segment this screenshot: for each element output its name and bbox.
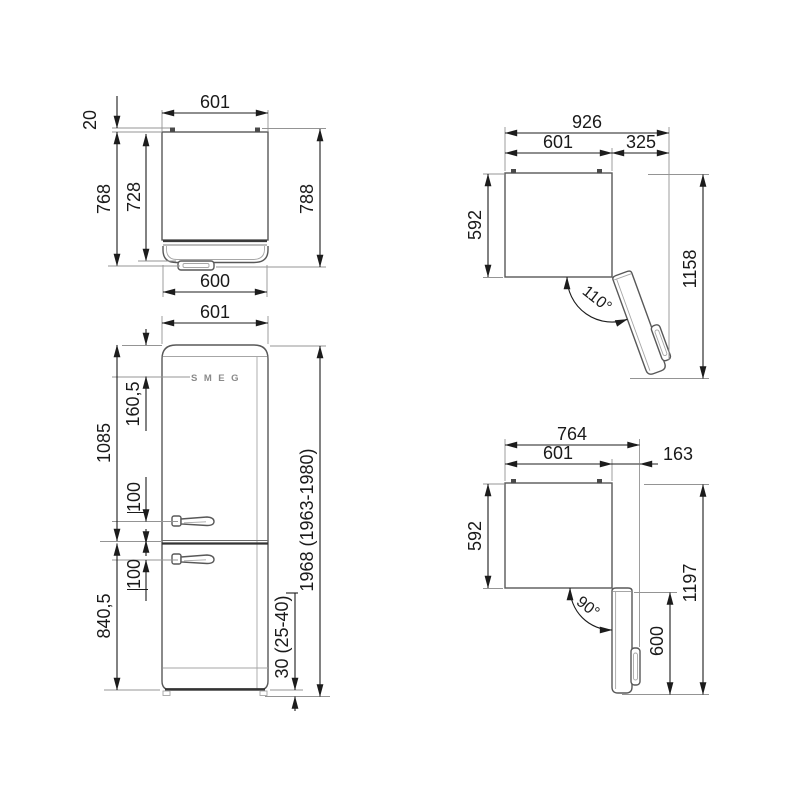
dim-total-height: 1968 (1963-1980) <box>297 448 317 591</box>
dim-90-depth: 592 <box>465 521 485 551</box>
handle-upper <box>172 516 214 526</box>
fridge-body-90 <box>505 483 612 588</box>
dim-110-door-clearance: 325 <box>626 132 656 152</box>
dim-logo-offset: 160,5 <box>123 381 143 426</box>
hinge-left-icon <box>170 128 175 133</box>
brand-logo: SMEG <box>191 373 245 384</box>
dim-110-total-depth: 1158 <box>680 250 700 289</box>
dim-90-body-width: 601 <box>543 443 573 463</box>
background <box>0 0 800 800</box>
fridge-top-body <box>162 132 268 240</box>
dim-110-body-width: 601 <box>543 132 573 152</box>
dim-bottom-width: 600 <box>200 271 230 291</box>
fridge-body-110 <box>505 173 612 277</box>
dim-110-depth: 592 <box>465 210 485 240</box>
dim-handle-upper: 100 <box>124 482 144 512</box>
hinge-right-icon <box>255 128 260 133</box>
dim-upper-section: 1085 <box>94 423 114 463</box>
front-view-drawing: SMEG <box>162 345 268 696</box>
dim-depth-total: 788 <box>297 184 317 214</box>
hinge-left-icon <box>511 479 516 484</box>
technical-drawing: 601 20 768 728 788 600 SMEG <box>0 0 800 800</box>
dim-90-door-length: 600 <box>647 626 667 656</box>
dim-handle-lower: 100 <box>124 559 144 589</box>
hinge-right-icon <box>597 169 602 174</box>
dim-lower-section: 840,5 <box>94 593 114 638</box>
dim-plinth: 30 (25-40) <box>272 595 292 678</box>
hinge-left-icon <box>511 169 516 174</box>
dim-front-width: 601 <box>200 302 230 322</box>
dim-110-total-width: 926 <box>572 112 602 132</box>
dim-hinge-depth: 20 <box>80 110 100 130</box>
hinge-right-icon <box>597 479 602 484</box>
dim-90-door-clearance: 163 <box>663 444 693 464</box>
dim-top-width: 601 <box>200 92 230 112</box>
dim-depth-body: 768 <box>94 184 114 214</box>
dim-90-total-width: 764 <box>557 424 587 444</box>
dim-depth-inner: 728 <box>124 182 144 212</box>
dim-90-total-depth: 1197 <box>680 564 700 603</box>
handle-lower <box>172 554 214 564</box>
